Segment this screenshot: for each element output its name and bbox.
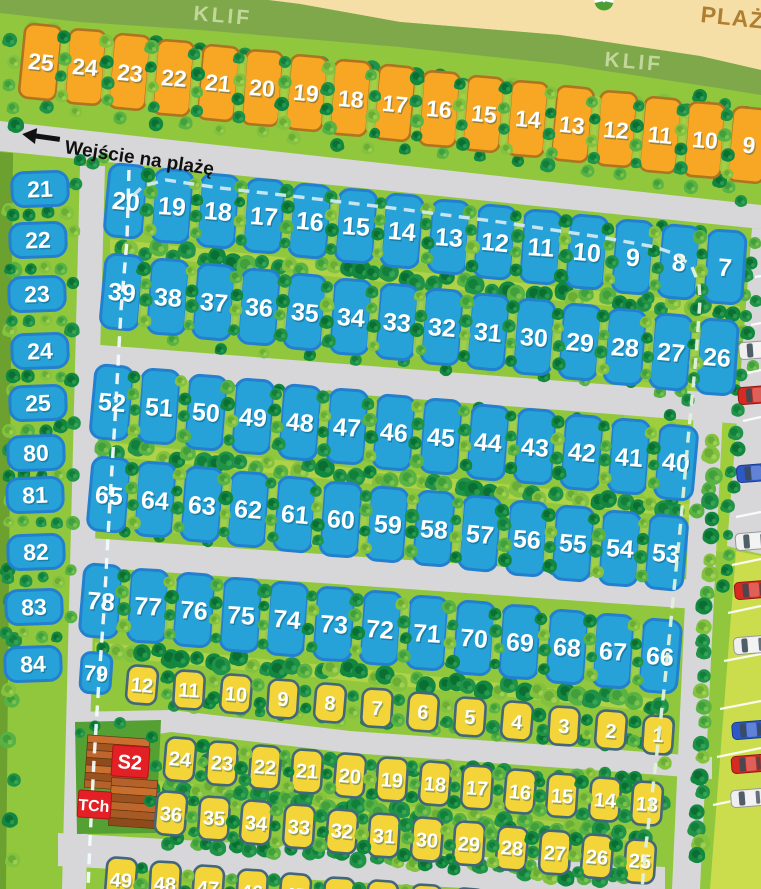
svg-text:84: 84 [20, 651, 47, 678]
svg-text:11: 11 [647, 121, 674, 149]
svg-text:64: 64 [140, 486, 170, 516]
svg-text:63: 63 [187, 491, 217, 521]
svg-text:20: 20 [338, 765, 362, 789]
svg-text:34: 34 [336, 303, 366, 333]
svg-text:52: 52 [97, 388, 127, 418]
svg-text:67: 67 [598, 637, 628, 667]
svg-text:7: 7 [717, 254, 733, 283]
svg-text:16: 16 [425, 95, 452, 123]
svg-text:23: 23 [24, 281, 50, 308]
svg-text:74: 74 [272, 605, 302, 635]
svg-text:8: 8 [323, 693, 336, 716]
svg-text:38: 38 [153, 283, 183, 313]
svg-text:49: 49 [238, 403, 268, 433]
svg-text:26: 26 [702, 343, 732, 373]
svg-text:34: 34 [244, 812, 269, 836]
svg-text:15: 15 [341, 212, 371, 242]
svg-text:62: 62 [233, 495, 263, 525]
svg-text:37: 37 [199, 288, 229, 318]
svg-text:28: 28 [500, 837, 524, 861]
svg-text:70: 70 [459, 624, 489, 654]
svg-text:73: 73 [319, 610, 348, 640]
svg-text:32: 32 [330, 820, 354, 844]
svg-text:26: 26 [585, 846, 609, 870]
svg-text:17: 17 [381, 90, 409, 118]
svg-text:69: 69 [505, 628, 534, 658]
svg-text:6: 6 [417, 702, 430, 725]
svg-text:68: 68 [552, 633, 582, 663]
svg-text:83: 83 [21, 594, 47, 621]
svg-text:12: 12 [130, 674, 154, 698]
svg-text:20: 20 [248, 74, 275, 102]
svg-text:22: 22 [25, 227, 51, 254]
svg-text:15: 15 [470, 100, 498, 128]
svg-text:14: 14 [514, 105, 542, 133]
svg-text:17: 17 [249, 202, 279, 232]
svg-text:18: 18 [203, 197, 233, 227]
svg-text:45: 45 [426, 423, 456, 453]
svg-text:15: 15 [550, 785, 574, 808]
svg-text:13: 13 [434, 223, 464, 253]
svg-text:25: 25 [25, 390, 52, 417]
svg-text:59: 59 [373, 510, 403, 540]
svg-text:13: 13 [635, 793, 659, 816]
svg-text:14: 14 [593, 789, 618, 813]
svg-text:19: 19 [157, 192, 187, 222]
svg-text:41: 41 [614, 443, 644, 473]
svg-text:58: 58 [419, 515, 449, 545]
svg-text:24: 24 [71, 53, 99, 81]
svg-text:10: 10 [691, 126, 719, 154]
svg-text:82: 82 [23, 539, 49, 566]
svg-text:29: 29 [457, 833, 481, 856]
svg-text:33: 33 [382, 308, 412, 338]
svg-text:44: 44 [473, 428, 503, 458]
svg-text:35: 35 [290, 298, 320, 328]
svg-text:10: 10 [224, 683, 248, 707]
svg-text:48: 48 [285, 408, 315, 438]
svg-text:18: 18 [423, 773, 447, 797]
svg-text:77: 77 [133, 592, 162, 622]
svg-text:5: 5 [464, 707, 477, 730]
svg-text:30: 30 [415, 829, 439, 853]
svg-text:2: 2 [604, 721, 617, 744]
svg-text:47: 47 [196, 877, 220, 889]
svg-text:25: 25 [27, 48, 55, 76]
svg-text:71: 71 [412, 619, 442, 649]
svg-text:25: 25 [628, 850, 652, 873]
svg-text:76: 76 [179, 596, 209, 626]
svg-text:48: 48 [153, 873, 176, 889]
svg-text:19: 19 [380, 769, 404, 792]
svg-text:22: 22 [160, 64, 188, 92]
svg-text:75: 75 [226, 601, 256, 631]
svg-text:72: 72 [365, 615, 395, 645]
svg-text:57: 57 [465, 520, 495, 550]
svg-text:19: 19 [292, 79, 320, 107]
svg-text:23: 23 [116, 59, 144, 87]
svg-text:54: 54 [605, 534, 635, 564]
svg-text:81: 81 [22, 482, 49, 509]
svg-text:11: 11 [527, 233, 555, 263]
svg-text:16: 16 [295, 207, 325, 237]
svg-text:24: 24 [168, 748, 193, 772]
svg-text:80: 80 [23, 440, 49, 467]
svg-text:33: 33 [287, 816, 311, 839]
svg-text:43: 43 [520, 433, 550, 463]
svg-text:18: 18 [337, 85, 365, 113]
svg-text:31: 31 [473, 318, 503, 348]
svg-text:9: 9 [277, 689, 290, 712]
svg-text:23: 23 [210, 752, 234, 775]
svg-text:36: 36 [159, 803, 183, 827]
svg-text:10: 10 [572, 238, 602, 268]
svg-text:24: 24 [27, 338, 54, 365]
svg-text:42: 42 [567, 438, 597, 468]
svg-text:78: 78 [86, 587, 116, 617]
svg-text:31: 31 [372, 825, 396, 848]
svg-text:55: 55 [558, 529, 588, 559]
svg-text:28: 28 [610, 333, 640, 363]
svg-text:13: 13 [558, 111, 586, 139]
svg-text:3: 3 [558, 716, 570, 739]
svg-text:30: 30 [519, 323, 549, 353]
svg-text:50: 50 [191, 398, 221, 428]
svg-text:29: 29 [565, 328, 595, 358]
svg-text:60: 60 [326, 505, 356, 535]
svg-text:12: 12 [602, 116, 629, 144]
svg-text:9: 9 [741, 131, 756, 158]
svg-text:46: 46 [379, 418, 409, 448]
svg-text:49: 49 [109, 869, 133, 889]
svg-text:11: 11 [178, 679, 200, 702]
svg-text:35: 35 [202, 807, 226, 830]
svg-text:21: 21 [204, 69, 232, 97]
svg-text:22: 22 [253, 756, 277, 780]
svg-text:61: 61 [280, 500, 310, 530]
svg-text:12: 12 [480, 228, 510, 258]
svg-text:32: 32 [427, 313, 457, 343]
svg-text:66: 66 [645, 642, 675, 672]
svg-text:17: 17 [465, 777, 489, 800]
svg-text:46: 46 [240, 881, 263, 889]
svg-text:14: 14 [387, 217, 417, 247]
svg-text:27: 27 [543, 842, 567, 865]
svg-text:9: 9 [625, 244, 641, 273]
svg-text:36: 36 [244, 293, 274, 323]
svg-text:7: 7 [371, 698, 383, 721]
svg-text:21: 21 [27, 176, 54, 203]
svg-text:56: 56 [512, 525, 542, 555]
svg-text:27: 27 [656, 338, 686, 368]
svg-text:51: 51 [144, 393, 174, 423]
svg-text:16: 16 [508, 781, 532, 805]
svg-text:45: 45 [283, 884, 307, 889]
svg-text:21: 21 [295, 760, 319, 783]
svg-text:79: 79 [83, 660, 109, 687]
svg-text:47: 47 [332, 413, 362, 443]
